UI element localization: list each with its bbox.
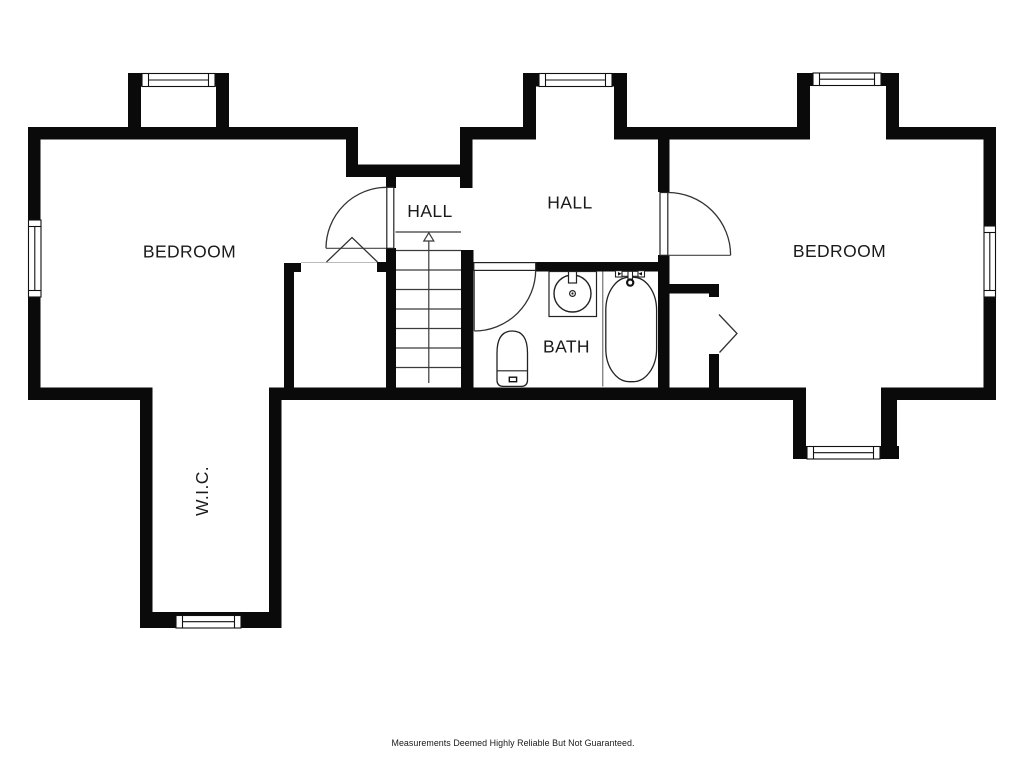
svg-text:HALL: HALL: [407, 201, 452, 221]
svg-text:BATH: BATH: [543, 337, 590, 357]
svg-text:Measurements Deemed Highly Rel: Measurements Deemed Highly Reliable But …: [392, 738, 635, 748]
svg-text:HALL: HALL: [547, 192, 592, 212]
svg-text:BEDROOM: BEDROOM: [793, 241, 886, 261]
svg-text:BEDROOM: BEDROOM: [143, 242, 236, 262]
svg-text:W.I.C.: W.I.C.: [192, 466, 212, 516]
